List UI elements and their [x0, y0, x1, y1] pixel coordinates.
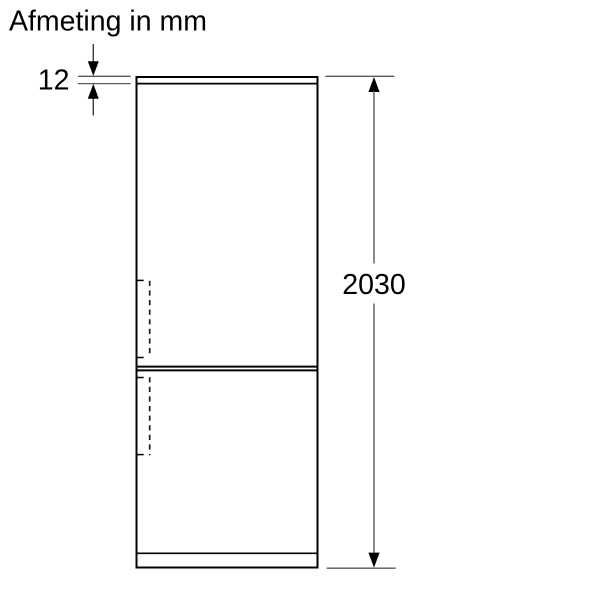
svg-text:2030: 2030 — [342, 269, 405, 301]
svg-text:12: 12 — [38, 65, 70, 97]
svg-text:Afmeting in mm: Afmeting in mm — [9, 6, 207, 38]
